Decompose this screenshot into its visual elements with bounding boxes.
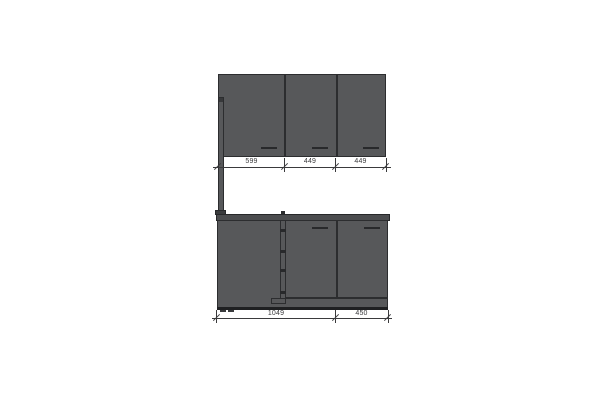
- lower-dim-label-450: 450: [335, 309, 388, 318]
- lower-dim-label-1049: 1049: [217, 309, 335, 318]
- filler-panel-cap: [219, 98, 223, 102]
- upper-dimension-line: [213, 167, 391, 168]
- countertop-joint-mark: [281, 211, 285, 214]
- base-door-1[interactable]: [286, 221, 336, 298]
- base-cabinet-run[interactable]: [217, 220, 388, 309]
- wall-door-3[interactable]: [338, 75, 385, 156]
- wall-door-1-handle: [261, 147, 277, 149]
- upper-dim-label-449a: 449: [285, 157, 335, 166]
- base-door-1-handle: [312, 227, 328, 229]
- lower-dimension-line: [212, 318, 392, 319]
- wall-cabinet-run[interactable]: [218, 74, 386, 157]
- base-door-2[interactable]: [338, 221, 388, 298]
- wall-door-2[interactable]: [286, 75, 336, 156]
- wall-door-3-handle: [363, 147, 379, 149]
- upper-dim-label-599: 599: [218, 157, 285, 166]
- elevation-drawing-canvas: 599 449 449 1049 450: [0, 0, 600, 405]
- upper-dim-label-449b: 449: [335, 157, 386, 166]
- left-filler-panel[interactable]: [218, 97, 224, 211]
- blind-corner-panel[interactable]: [218, 221, 280, 308]
- wall-door-2-handle: [312, 147, 328, 149]
- wall-door-1[interactable]: [219, 75, 284, 156]
- base-door-2-handle: [364, 227, 380, 229]
- hinge-strip-step: [271, 298, 286, 304]
